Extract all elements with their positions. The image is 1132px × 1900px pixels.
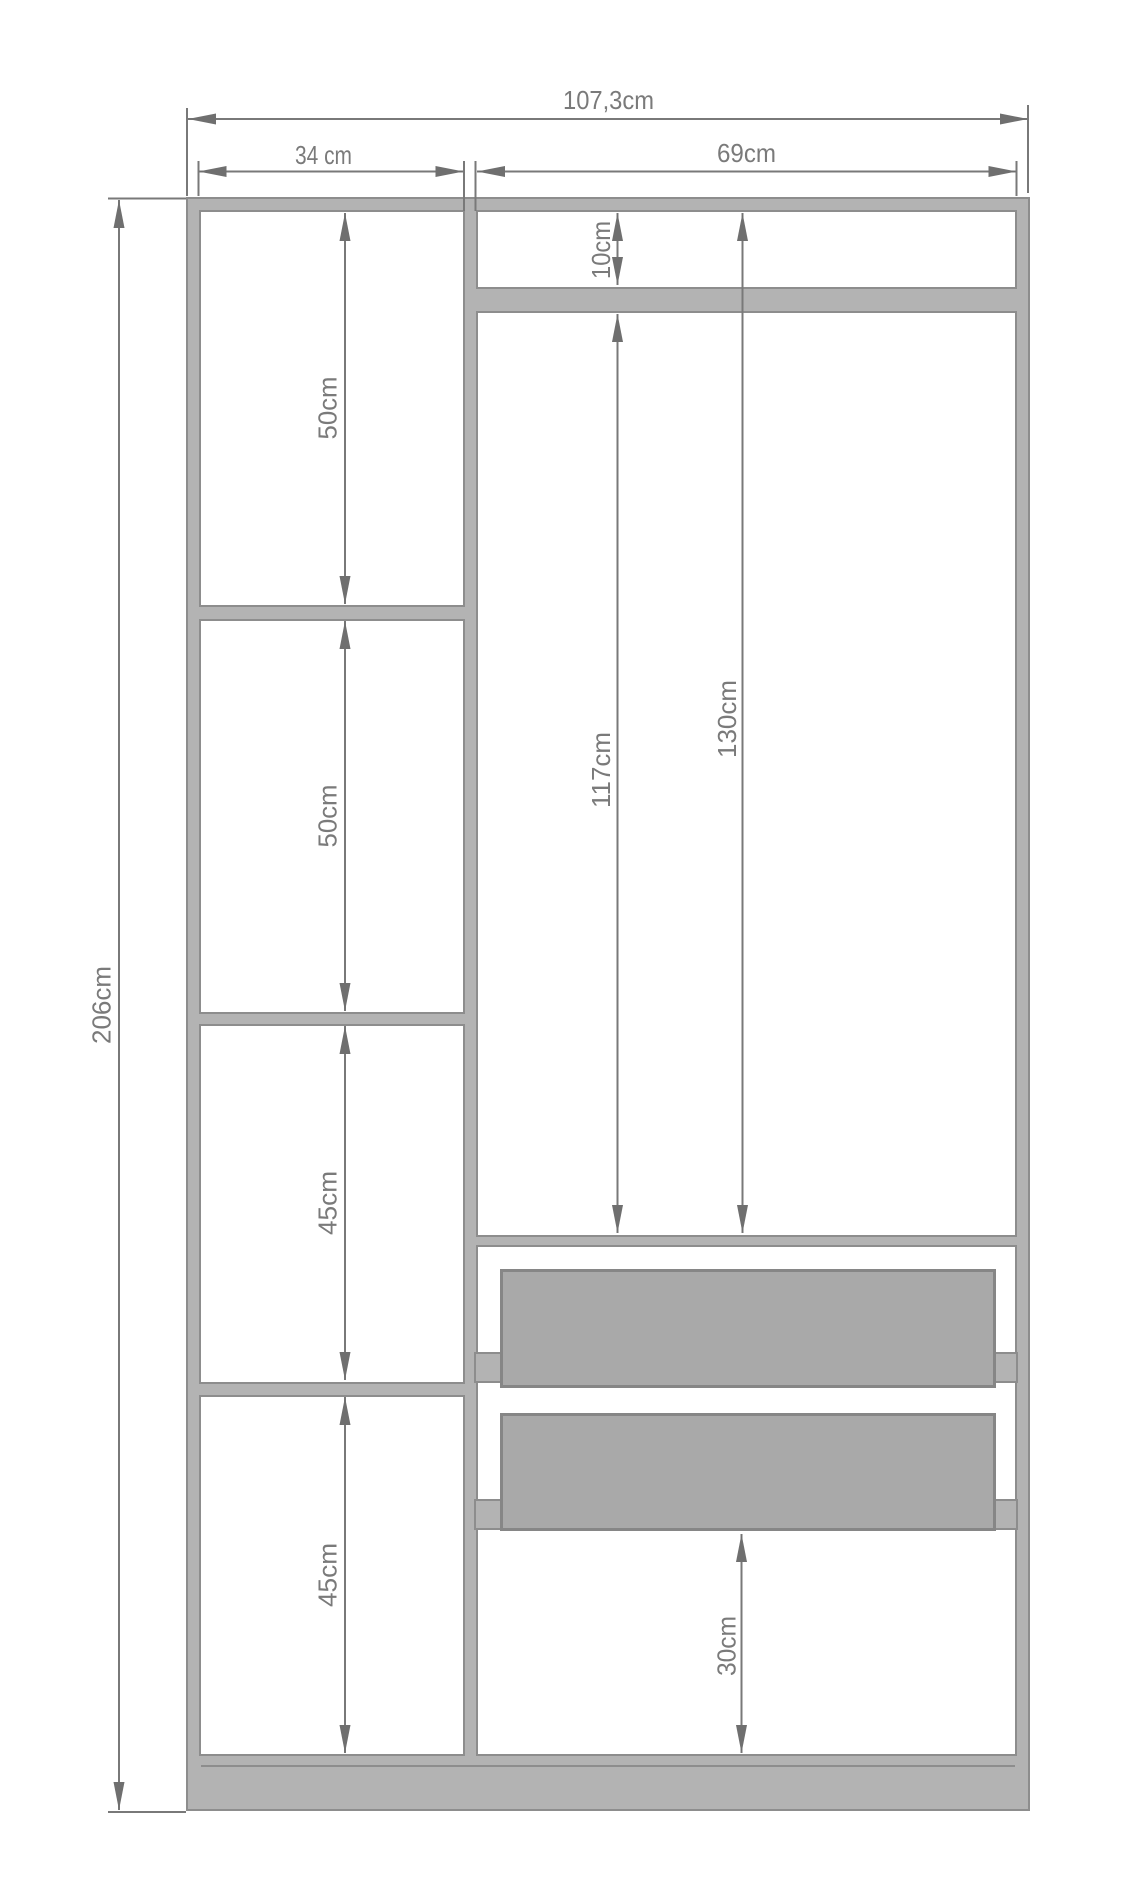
- svg-text:45cm: 45cm: [313, 1543, 343, 1607]
- svg-text:50cm: 50cm: [313, 377, 343, 440]
- svg-text:107,3cm: 107,3cm: [563, 85, 654, 115]
- svg-text:69cm: 69cm: [717, 138, 776, 168]
- svg-text:34 cm: 34 cm: [295, 140, 352, 170]
- svg-text:206cm: 206cm: [87, 966, 117, 1044]
- svg-text:130cm: 130cm: [712, 680, 742, 758]
- svg-text:30cm: 30cm: [712, 1616, 742, 1676]
- svg-text:10cm: 10cm: [586, 221, 616, 279]
- svg-text:45cm: 45cm: [313, 1171, 343, 1235]
- svg-text:50cm: 50cm: [313, 785, 343, 848]
- svg-text:117cm: 117cm: [586, 732, 616, 808]
